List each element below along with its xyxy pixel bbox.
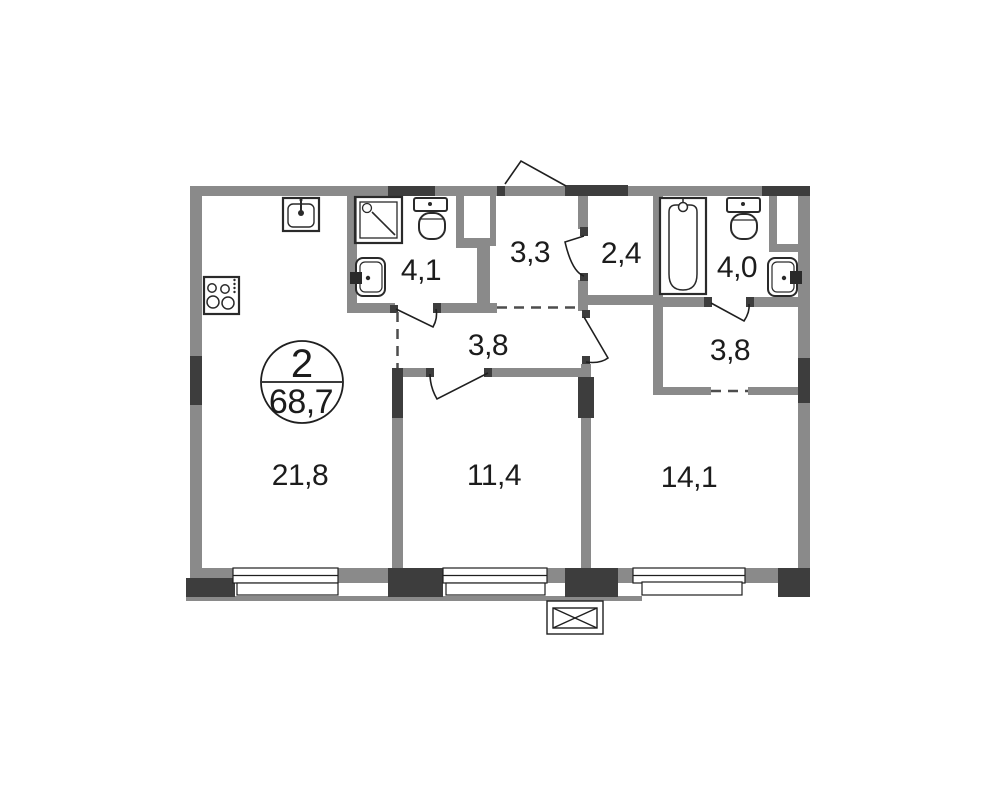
- bathtub-icon: [660, 198, 706, 294]
- room-area-label: 3,3: [510, 238, 550, 268]
- room-area-label: 11,4: [467, 461, 521, 491]
- window: [633, 568, 745, 595]
- ventilation-box-icon: [547, 601, 603, 634]
- washbasin-icon: [768, 258, 802, 296]
- floor-plan: 2 68,7 21,8 4,1 3,3 2,4 4,0 3,8 3,8 11,4…: [0, 0, 1000, 800]
- dashed-opening: [398, 308, 749, 392]
- room-area-label: 3,8: [468, 331, 508, 361]
- room-area-label: 21,8: [272, 461, 328, 491]
- room-area-label: 3,8: [710, 336, 750, 366]
- shower-cabin-icon: [355, 197, 402, 243]
- door-swing: [565, 236, 584, 276]
- plan-drawing-layer: [0, 0, 1000, 800]
- room-area-label: 2,4: [601, 239, 641, 269]
- door-swing: [584, 317, 608, 363]
- room-area-label: 14,1: [661, 463, 717, 493]
- toilet-icon: [414, 198, 447, 239]
- room-area-label: 4,0: [717, 253, 757, 283]
- stove-icon: [204, 277, 239, 314]
- sink-icon: [283, 198, 319, 231]
- window: [443, 568, 547, 595]
- door-swing: [430, 373, 488, 399]
- window: [233, 568, 338, 595]
- door-swing: [396, 309, 437, 327]
- room-area-label: 4,1: [401, 256, 441, 286]
- toilet-icon: [727, 198, 760, 239]
- badge-total-area: 68,7: [269, 385, 333, 419]
- entrance-door-swing: [505, 161, 566, 186]
- badge-rooms-count: 2: [291, 344, 313, 384]
- washbasin-icon: [350, 258, 385, 296]
- door-swing: [711, 303, 749, 321]
